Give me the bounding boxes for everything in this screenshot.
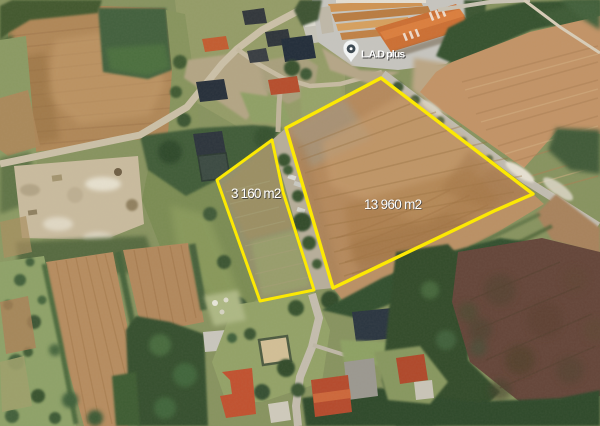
svg-text:13 960 m2: 13 960 m2 [364,197,422,212]
svg-text:3 160 m2: 3 160 m2 [231,186,281,201]
svg-text:L.A.D plus: L.A.D plus [361,49,405,61]
